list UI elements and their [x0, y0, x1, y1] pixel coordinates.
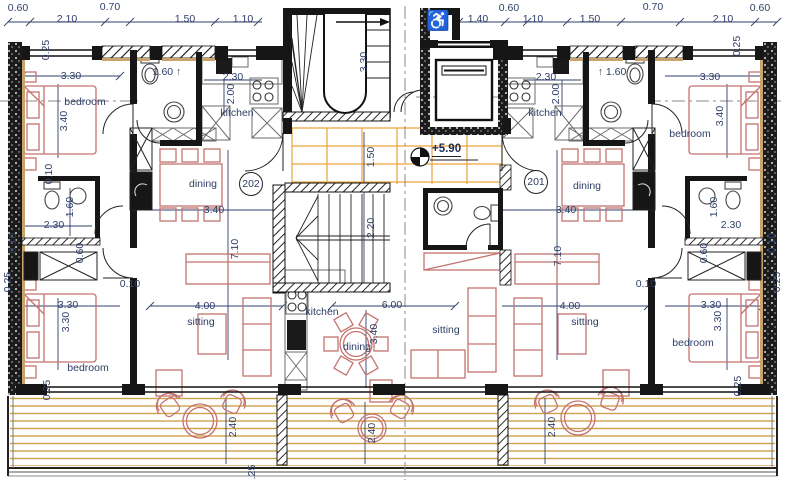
dimension-label: 1.60 ↑ [153, 67, 182, 78]
dimension-label: 0.10 [44, 164, 55, 184]
dimension-label: 1.60 [709, 197, 720, 217]
dimension-label: 0.70 [643, 2, 663, 13]
room-label: dining [189, 179, 217, 190]
dimension-label: 2.10 [713, 14, 733, 25]
dimension-label: 1.60 [65, 197, 76, 217]
floor-plan-canvas: ♿ +5.90 0.602.100.701.501.101.400.601.10… [0, 0, 785, 485]
dimension-label: 0.25 [42, 380, 53, 400]
dimension-label: 3.30 [58, 300, 78, 311]
dimension-label: 0.60 [75, 243, 86, 263]
room-label: kitchen [528, 108, 561, 119]
dimension-label: 1.10 [233, 14, 253, 25]
dimension-label: 7.10 [230, 239, 241, 259]
dimension-label: 0.25 [772, 272, 783, 292]
dimension-label: 4.00 [560, 301, 580, 312]
dimension-label: 3.30 [359, 52, 370, 72]
room-label: bedroom [672, 338, 713, 349]
unit-number-badge: 201 [524, 170, 548, 194]
dimension-label: 0.25 [732, 36, 743, 56]
room-label: kitchen [305, 307, 338, 318]
dimension-label: 0.60 [8, 3, 28, 14]
dimension-label: 2.20 [366, 218, 377, 238]
dimension-label: 3.40 [715, 106, 726, 126]
dimension-label: ↑ 1.60 [598, 67, 627, 78]
dimension-label: 3.40 [556, 205, 576, 216]
dimension-label: 0.60 [750, 3, 770, 14]
main-staircase [283, 8, 390, 121]
dimension-label: 3.40 [59, 111, 70, 131]
dimension-label: 1.50 [580, 14, 600, 25]
dimension-label: 2.30 [223, 72, 243, 83]
dimension-label: 0.25 [733, 376, 744, 396]
room-label: bedroom [669, 129, 710, 140]
wheelchair-icon: ♿ [426, 12, 450, 31]
dimension-label: 0.60 [699, 243, 710, 263]
dimension-label: 2.40 [547, 417, 558, 437]
dimension-label: 3.30 [61, 312, 72, 332]
room-label: bedroom [64, 97, 105, 108]
dimension-label: 1.50 [175, 14, 195, 25]
room-label: dining [573, 181, 601, 192]
dimension-label: 3.40 [204, 205, 224, 216]
dimension-label: 2.40 [228, 417, 239, 437]
dimension-label: 4.00 [195, 301, 215, 312]
dimension-label: 1.50 [366, 147, 377, 167]
dimension-label: 2.30 [721, 220, 741, 231]
dimension-label: 0.10 [120, 279, 140, 290]
dimension-label: 0.25 [41, 40, 52, 60]
dimension-label: 0.10 [767, 233, 778, 253]
room-label: kitchen [220, 108, 253, 119]
dimension-label: 0.60 [499, 3, 519, 14]
dimension-label: 0.10 [636, 279, 656, 290]
room-label: dining [343, 342, 371, 353]
dimension-label: 2.00 [551, 84, 562, 104]
hall-tile-grid [292, 128, 502, 184]
walls [8, 42, 777, 395]
room-label: bedroom [67, 363, 108, 374]
dimension-label: .25 [247, 465, 258, 480]
dimension-label: 6.00 [382, 300, 402, 311]
dimension-label: 2.30 [44, 220, 64, 231]
dimension-label: 0.70 [100, 2, 120, 13]
dimension-label: 0.10 [8, 233, 19, 253]
dimension-label: 1.40 [468, 14, 488, 25]
dimension-label: 2.30 [536, 72, 556, 83]
dimension-label: 3.30 [713, 311, 724, 331]
oven [287, 320, 306, 350]
dimension-label: 2.40 [367, 423, 378, 443]
room-label: sitting [571, 317, 598, 328]
room-label: sitting [187, 317, 214, 328]
unit-number-badge: 202 [239, 172, 263, 196]
dimension-label: 3.30 [61, 71, 81, 82]
dimension-label: 1.10 [523, 14, 543, 25]
dimension-label: 2.00 [226, 84, 237, 104]
level-label: +5.90 [432, 143, 461, 157]
room-label: sitting [432, 325, 459, 336]
dimension-label: 3.30 [701, 300, 721, 311]
dimension-label: 0.25 [3, 272, 14, 292]
dimension-label: 7.10 [553, 246, 564, 266]
dimension-label: 3.30 [700, 72, 720, 83]
plan-drawing [0, 0, 785, 485]
dimension-label: 2.10 [57, 14, 77, 25]
